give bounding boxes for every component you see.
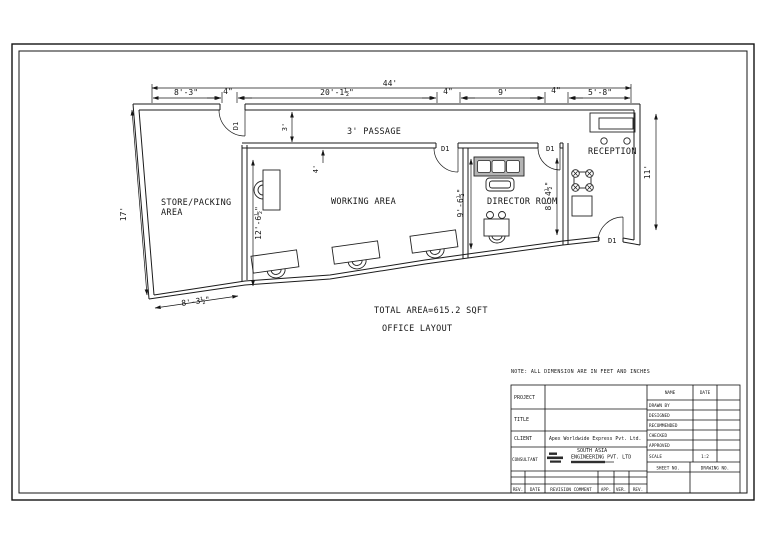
desk-left [254,170,280,210]
checked-label: CHECKED [649,433,668,439]
sheet-border [12,44,754,500]
desk-row-1 [251,250,300,281]
door-label-entrance: D1 [232,122,240,130]
rev2-label: REV. [633,487,643,493]
designed-label: DESIGNED [649,413,670,419]
dim-director-left: 9'-6½" [455,189,465,218]
drawing-no-label: DRAWING NO. [701,466,729,472]
drawing-title-text: OFFICE LAYOUT [382,324,452,334]
dim-store-bottom: 8'-3½" [181,294,211,308]
rev-date-label: DATE [530,487,541,493]
director-desk [484,212,509,244]
client-label: CLIENT [514,436,532,442]
room-label-director: DIRECTOR ROOM [487,197,557,207]
name-col-label: NAME [665,390,676,396]
dim-working-4: 4' [312,165,320,173]
scale-label: SCALE [649,454,662,460]
consultant-line2: ENGINEERING PVT. LTD [571,455,631,461]
consultant-label: CONSULTANT [512,457,538,463]
client-value: Apex Worldwide Express Pvt. Ltd. [549,436,641,442]
rev-label: REV. [513,487,523,493]
room-label-reception: RECEPTION [588,147,637,157]
sheet-no-label: SHEET NO. [656,466,679,472]
office-layout-drawing: 44' 8'-3" 4" 20'-1½" 4" 9' 4" 5'-8" 17' … [0,0,768,543]
reception-cabinet [572,196,592,216]
note-text: NOTE: ALL DIMENSION ARE IN FEET AND INCH… [511,369,650,375]
meeting-table [572,170,594,192]
door-label-reception: D1 [608,237,616,245]
dim-working-left: 12'-6½" [253,206,263,240]
date-col-label: DATE [700,390,711,396]
reception-stools [601,138,630,144]
desk-row-2 [332,241,381,272]
project-label: PROJECT [514,395,535,401]
dim-right-11: 11' [643,165,652,179]
dim-top-2: 4" [223,87,233,96]
dim-top-7: 5'-8" [588,88,612,97]
room-label-working: WORKING AREA [331,197,396,207]
recommended-label: RECOMMENDED [649,423,678,429]
titleblock: NOTE: ALL DIMENSION ARE IN FEET AND INCH… [511,369,740,493]
dim-top-1: 8'-3" [174,88,198,97]
dim-left-17: 17' [119,207,128,221]
consultant-contact-mark [571,461,614,463]
drawing-sheet: 44' 8'-3" 4" 20'-1½" 4" 9' 4" 5'-8" 17' … [0,0,768,543]
app-label: APP. [601,487,611,493]
ver-label: VER. [616,487,626,493]
room-label-store-1: STORE/PACKING [161,198,231,208]
dim-passage-3: 3' [281,123,289,131]
dim-top-4: 4" [443,87,453,96]
reception-counter [590,113,635,132]
consultant-line1: SOUTH ASIA [577,448,607,454]
dim-top-5: 9' [498,88,508,97]
title-label: TITLE [514,417,529,423]
dim-overall-top: 44' [383,79,397,88]
consultant-logo-mark [547,453,563,463]
sofa [474,157,524,176]
room-label-store-2: AREA [161,208,183,218]
dim-top-3: 20'-1½" [320,87,354,97]
dim-top-6: 4" [551,86,561,95]
drawn-by-label: DRAWN BY [649,403,670,409]
coffee-table [486,178,514,191]
door-label-director: D1 [546,145,554,153]
total-area-text: TOTAL AREA=615.2 SQFT [374,306,488,316]
furniture [251,113,635,281]
revision-comment-label: REVISION COMMENT [550,487,592,493]
door-label-working: D1 [441,145,449,153]
approved-label: APPROVED [649,443,670,449]
scale-value: 1:2 [701,454,709,460]
room-label-passage: 3' PASSAGE [347,127,401,137]
